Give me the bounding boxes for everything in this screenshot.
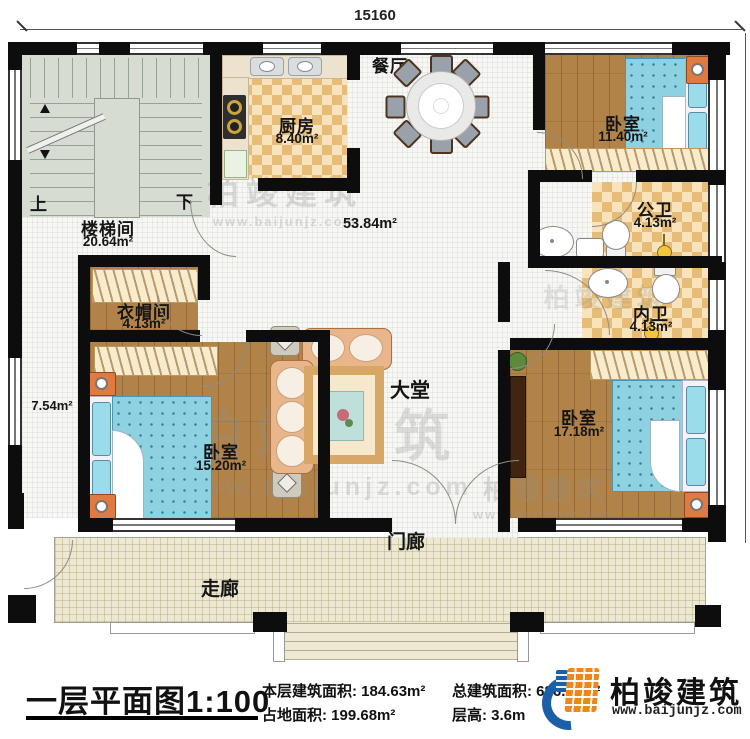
wall-bedroom-left-right bbox=[318, 330, 330, 532]
rug bbox=[304, 366, 384, 464]
pillow bbox=[686, 438, 706, 486]
wall-vanity-left bbox=[528, 170, 540, 268]
stairwell-area: 20.64m² bbox=[68, 234, 148, 249]
window bbox=[708, 280, 726, 330]
window bbox=[556, 518, 682, 532]
stat-label: 本层建筑面积: bbox=[262, 683, 357, 700]
stat-land-area: 占地面积: 199.68m² bbox=[262, 704, 395, 725]
plan-scale: 1:100 bbox=[186, 684, 270, 719]
wall-wardrobe-bottom bbox=[636, 170, 722, 182]
window bbox=[77, 42, 99, 55]
window bbox=[113, 518, 235, 532]
window bbox=[8, 358, 22, 445]
kitchen-area: 8.40m² bbox=[264, 131, 330, 146]
column bbox=[8, 595, 36, 623]
window bbox=[534, 42, 672, 55]
column bbox=[253, 612, 287, 632]
floor-plan-page: 15160 12800 柏竣建筑 www.baijunjz.com 柏竣建筑 w… bbox=[0, 0, 750, 739]
window bbox=[130, 42, 203, 55]
side-corridor-area-label: 7.54m² bbox=[26, 398, 78, 413]
stat-value: 184.63m² bbox=[361, 683, 425, 700]
title-underline bbox=[26, 716, 258, 720]
wall-kitchen-bottom bbox=[258, 178, 360, 191]
plan-title-text: 一层平面图 bbox=[26, 684, 186, 719]
private-bath-area: 4.13m² bbox=[624, 319, 678, 334]
bedroom-top-area: 11.40m² bbox=[586, 129, 660, 144]
window bbox=[8, 70, 22, 160]
ground-edge bbox=[540, 622, 695, 634]
dining-table bbox=[406, 71, 476, 141]
stat-value: 3.6m bbox=[491, 707, 525, 724]
porch-label: 门廊 bbox=[378, 527, 434, 554]
entry-steps bbox=[283, 622, 517, 660]
brand-logo: 柏竣建筑 www.baijunjz.com bbox=[542, 664, 748, 736]
nightstand bbox=[684, 492, 710, 518]
hall-label: 大堂 bbox=[382, 374, 438, 403]
stair-flight-top bbox=[30, 58, 202, 98]
wall-bath-divider bbox=[528, 256, 722, 268]
vanity-sink bbox=[576, 238, 604, 258]
stat-value: 199.68m² bbox=[331, 707, 395, 724]
ground-edge bbox=[110, 622, 255, 634]
pillow bbox=[92, 402, 111, 456]
window bbox=[708, 80, 726, 170]
stair-arrow-up bbox=[40, 104, 50, 113]
wall-kitchen-right bbox=[347, 42, 360, 80]
plan-title: 一层平面图1:100 bbox=[26, 676, 270, 721]
window bbox=[401, 42, 493, 55]
stair-up-label: 上 bbox=[24, 190, 54, 215]
stair-arrow-down bbox=[40, 150, 50, 159]
bedroom-left-area: 15.20m² bbox=[184, 458, 258, 473]
column bbox=[695, 605, 721, 627]
nightstand bbox=[88, 494, 116, 519]
kitchen-sink bbox=[250, 57, 284, 76]
column bbox=[510, 612, 544, 632]
top-dimension-line bbox=[20, 29, 742, 30]
pier bbox=[8, 493, 24, 529]
wall-corridor bbox=[78, 255, 90, 532]
brand-url: www.baijunjz.com bbox=[612, 704, 742, 719]
wardrobe bbox=[590, 350, 710, 380]
right-dimension-line bbox=[745, 33, 746, 543]
stove bbox=[223, 95, 246, 139]
wall-cloakroom-right bbox=[198, 255, 210, 300]
veranda-label: 走廊 bbox=[192, 574, 248, 601]
wall-bedroom-top-left bbox=[533, 42, 545, 130]
open-area-label: 53.84m² bbox=[338, 216, 402, 232]
public-bath-area: 4.13m² bbox=[628, 215, 682, 230]
kitchen-counter bbox=[222, 55, 349, 79]
kitchen-appliance bbox=[224, 150, 247, 178]
window bbox=[263, 42, 321, 55]
stat-label: 层高: bbox=[452, 707, 487, 724]
window bbox=[708, 390, 726, 505]
bedroom-right-area: 17.18m² bbox=[540, 424, 618, 439]
dining-chair bbox=[386, 96, 406, 119]
stat-label: 占地面积: bbox=[262, 707, 327, 724]
logo-building-icon bbox=[564, 668, 599, 712]
stat-floor-area: 本层建筑面积: 184.63m² bbox=[262, 680, 425, 701]
wall-stair-kitchen bbox=[210, 42, 222, 205]
stat-label: 总建筑面积: bbox=[452, 683, 532, 700]
kitchen-sink bbox=[288, 57, 322, 76]
pillow bbox=[686, 386, 706, 434]
wall-stairhall-bottom bbox=[78, 255, 210, 267]
stat-floor-height: 层高: 3.6m bbox=[452, 704, 525, 725]
nightstand bbox=[88, 372, 116, 396]
top-dimension-label: 15160 bbox=[330, 7, 420, 24]
wall-bedroom-right-left bbox=[498, 262, 510, 322]
window bbox=[708, 185, 726, 262]
nightstand bbox=[686, 56, 710, 84]
